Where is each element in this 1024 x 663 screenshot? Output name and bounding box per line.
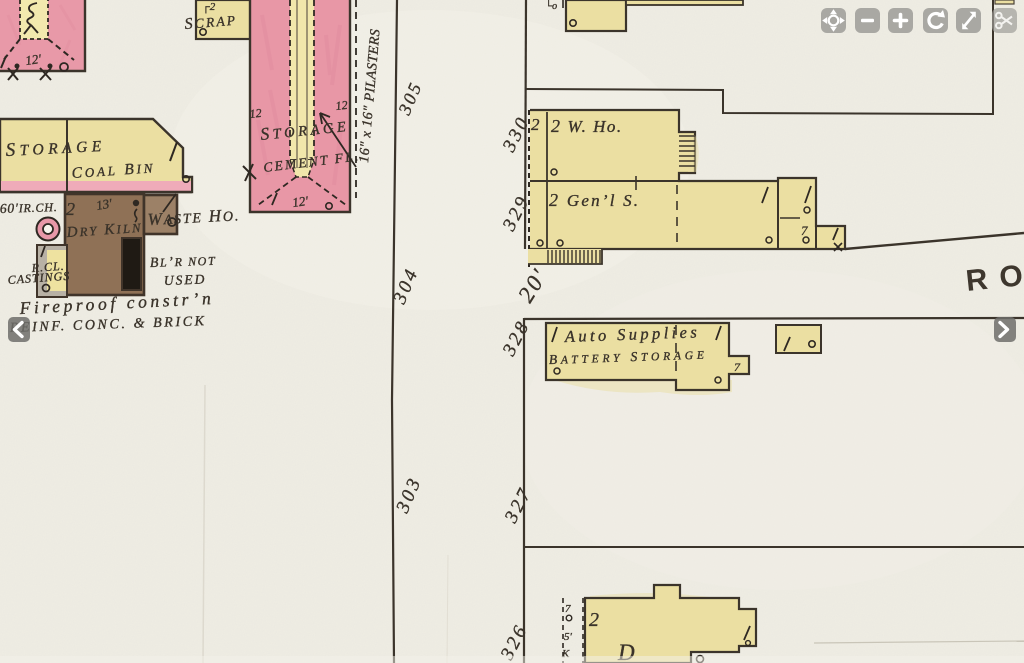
- svg-text:12′: 12′: [291, 193, 309, 210]
- svg-text:12: 12: [249, 106, 262, 121]
- svg-text:┌2: ┌2: [202, 1, 216, 14]
- svg-text:60′IR.CH.: 60′IR.CH.: [0, 199, 58, 216]
- svg-text:12′: 12′: [24, 51, 42, 68]
- svg-text:USED: USED: [164, 272, 207, 288]
- svg-text:2 Gen’l S.: 2 Gen’l S.: [549, 190, 640, 210]
- svg-text:5′: 5′: [564, 631, 573, 643]
- svg-text:RO: RO: [964, 258, 1024, 298]
- svg-text:12: 12: [335, 98, 348, 113]
- svg-text:2: 2: [531, 115, 540, 134]
- svg-text:└ο: └ο: [545, 0, 557, 12]
- svg-text:7: 7: [801, 223, 808, 238]
- svg-text:13′: 13′: [95, 195, 113, 213]
- svg-text:2: 2: [589, 609, 599, 631]
- svg-text:7: 7: [734, 360, 741, 374]
- svg-text:2: 2: [66, 199, 75, 219]
- svg-text:7: 7: [565, 603, 571, 615]
- svg-text:2 W. Ho.: 2 W. Ho.: [551, 116, 623, 136]
